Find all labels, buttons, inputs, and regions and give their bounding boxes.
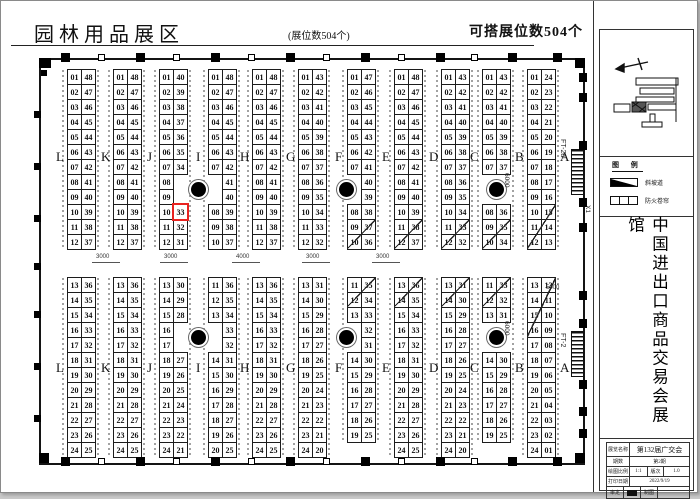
booth-cell: 01	[441, 69, 456, 85]
booth-cell: 19	[394, 367, 409, 383]
escalator-label: FT-2	[559, 333, 566, 347]
booth-cell: 12	[252, 234, 267, 250]
booth-cell: 40	[496, 114, 511, 130]
dimension-label: 3000	[306, 254, 319, 260]
booth-cell: 19	[67, 367, 82, 383]
exhibitor-name-strip	[203, 70, 205, 248]
booth-cell: 08	[394, 174, 409, 190]
booth-cell: 14	[159, 292, 174, 308]
booth-cell: 44	[361, 114, 376, 130]
wall-pillar	[61, 457, 70, 466]
booth-cell: 43	[455, 69, 470, 85]
booth-cell: 08	[482, 204, 497, 220]
booth-cell: 09	[298, 189, 313, 205]
booth-cell: 48	[127, 69, 142, 85]
exhibitor-name-strip	[557, 278, 559, 456]
booth-cell: 31	[222, 352, 237, 368]
booth-cell: 40	[173, 69, 188, 85]
booth-cell: 05	[159, 129, 174, 145]
booth-cell: 15	[441, 307, 456, 323]
stamp-cell	[657, 487, 689, 498]
wall-pillar	[211, 457, 220, 466]
booth-cell: 07	[394, 159, 409, 175]
wall-pillar	[34, 215, 41, 222]
booth-cell: 22	[527, 412, 542, 428]
booth-cell: 23	[173, 412, 188, 428]
exhibitor-name-strip	[328, 70, 330, 248]
wall-opening	[398, 54, 405, 61]
aisle-letter-g-bottom: G	[286, 360, 295, 376]
exhibitor-name-strip	[189, 278, 191, 456]
booth-cell: 43	[127, 144, 142, 160]
wall-pillar	[553, 53, 562, 62]
booth-cell: 18	[252, 352, 267, 368]
booth-cell: 08	[208, 204, 223, 220]
booth-cell: 41	[266, 174, 281, 190]
dimension-label: 3000	[96, 254, 109, 260]
booth-cell: 27	[127, 412, 142, 428]
booth-cell: 19	[441, 367, 456, 383]
booth-cell: 01	[298, 69, 313, 85]
exhibitor-name-strip	[97, 278, 99, 456]
booth-cell: 47	[222, 84, 237, 100]
booth-cell: 19	[527, 367, 542, 383]
booth-cell: 36	[266, 277, 281, 293]
booth-cell: 27	[312, 337, 327, 353]
booth-cell: 25	[127, 442, 142, 458]
booth-cell: 24	[67, 442, 82, 458]
booth-cell: 14	[482, 352, 497, 368]
booth-cell: 30	[127, 367, 142, 383]
hall-plan: 0148024703460445054406430742084109401039…	[1, 1, 593, 492]
booth-cell: 44	[127, 129, 142, 145]
booth-cell: 24	[527, 442, 542, 458]
booth-cell: 22	[312, 412, 327, 428]
booth-cell: 11	[298, 219, 313, 235]
booth-cell: 12	[159, 234, 174, 250]
booth-cell: 47	[361, 69, 376, 85]
booth-cell: 13	[113, 277, 128, 293]
booth-cell: 03	[441, 99, 456, 115]
wall-pillar	[436, 53, 445, 62]
booth-cell: 37	[173, 114, 188, 130]
booth-cell: 19	[541, 144, 556, 160]
booth-cell: 02	[441, 84, 456, 100]
wall-opening	[471, 54, 478, 61]
booth-cell: 07	[67, 159, 82, 175]
booth-cell: 20	[541, 129, 556, 145]
booth-cell: 38	[81, 219, 96, 235]
booth-cell: 44	[81, 129, 96, 145]
aisle-letter-c-bottom: C	[470, 360, 479, 376]
booth-cell: 14	[252, 292, 267, 308]
booth-cell: 35	[127, 292, 142, 308]
booth-cell: 20	[67, 382, 82, 398]
booth-cell: 39	[81, 204, 96, 220]
booth-cell: 05	[527, 129, 542, 145]
sidebar-divider	[593, 1, 594, 492]
exhibitor-name-strip	[557, 70, 559, 248]
booth-cell: 43	[81, 144, 96, 160]
booth-cell: 09	[394, 189, 409, 205]
legend-title: 图 例	[612, 160, 643, 172]
wall-opening	[323, 458, 330, 465]
booth-cell: 24	[394, 442, 409, 458]
booth-cell: 10	[298, 204, 313, 220]
booth-cell: 31	[266, 352, 281, 368]
booth-cell: 16	[394, 322, 409, 338]
booth-cell: 43	[222, 144, 237, 160]
booth-cell: 18	[394, 352, 409, 368]
booth-cell: 01	[394, 69, 409, 85]
booth-cell: 13	[67, 277, 82, 293]
aisle-letter-g-top: G	[286, 149, 295, 165]
booth-cell: 10	[67, 204, 82, 220]
booth-cell: 33	[127, 322, 142, 338]
wall-pillar	[34, 363, 41, 370]
booth-cell: 15	[347, 367, 362, 383]
booth-cell: 15	[159, 307, 174, 323]
aisle-letter-l-top: L	[56, 149, 64, 165]
wall-opening	[98, 54, 105, 61]
booth-cell: 27	[222, 412, 237, 428]
booth-cell: 41	[222, 174, 237, 190]
booth-cell: 20	[252, 382, 267, 398]
booth-cell: 22	[173, 427, 188, 443]
booth-cell: 07	[298, 159, 313, 175]
booth-cell: 16	[159, 322, 174, 338]
exhibitor-name-strip	[512, 70, 514, 248]
booth-cell: 34	[81, 307, 96, 323]
venue-title-vertical: 中国进出口商品交易会展馆	[600, 216, 693, 438]
dimension-label: 6000	[503, 173, 510, 187]
booth-cell: 43	[312, 69, 327, 85]
booth-cell: 37	[266, 234, 281, 250]
ramp-diagonal-mark	[394, 277, 423, 307]
booth-cell: 44	[266, 129, 281, 145]
booth-cell: 39	[222, 204, 237, 220]
booth-cell: 41	[361, 159, 376, 175]
booth-cell: 20	[159, 382, 174, 398]
booth-cell: 30	[408, 367, 423, 383]
booth-cell: 34	[222, 307, 237, 323]
booth-cell: 39	[127, 204, 142, 220]
booth-cell: 46	[361, 84, 376, 100]
aisle-letter-l-bottom: L	[56, 360, 64, 376]
dimension-label: 3000	[164, 254, 177, 260]
booth-cell: 04	[252, 114, 267, 130]
booth-cell: 21	[394, 397, 409, 413]
ramp-diagonal-mark	[482, 277, 511, 307]
aisle-letter-j-top: J	[147, 149, 152, 165]
booth-cell: 39	[266, 204, 281, 220]
booth-cell: 01	[527, 69, 542, 85]
booth-cell: 08	[113, 174, 128, 190]
booth-cell: 10	[208, 234, 223, 250]
booth-cell: 18	[541, 159, 556, 175]
wall-pillar	[34, 311, 41, 318]
booth-cell: 38	[266, 219, 281, 235]
booth-cell: 18	[482, 412, 497, 428]
selected-booth-highlight[interactable]	[172, 203, 189, 221]
booth-cell: 30	[266, 367, 281, 383]
wall-opening	[471, 458, 478, 465]
booth-cell: 06	[441, 144, 456, 160]
dimension-line	[160, 262, 188, 263]
scale-value: 1:1	[629, 467, 647, 476]
dimension-label: 4000	[236, 254, 249, 260]
booth-cell: 33	[312, 219, 327, 235]
booth-cell: 40	[222, 189, 237, 205]
booth-cell: 27	[266, 412, 281, 428]
booth-cell: 31	[81, 352, 96, 368]
wall-pillar	[579, 429, 587, 438]
booth-cell: 17	[441, 337, 456, 353]
booth-cell: 36	[81, 277, 96, 293]
wall-pillar	[508, 457, 517, 466]
title-block-label: 打印日期	[607, 477, 629, 486]
booth-cell: 37	[312, 159, 327, 175]
booth-cell: 26	[361, 412, 376, 428]
title-block-label: 绘图比例	[607, 467, 629, 476]
booth-cell: 33	[266, 322, 281, 338]
booth-cell: 02	[252, 84, 267, 100]
booth-cell: 05	[394, 129, 409, 145]
booth-cell: 24	[298, 442, 313, 458]
booth-cell: 12	[67, 234, 82, 250]
wall-pillar	[211, 53, 220, 62]
booth-cell: 21	[173, 442, 188, 458]
booth-cell: 37	[222, 234, 237, 250]
booth-cell: 38	[173, 99, 188, 115]
booth-cell: 11	[67, 219, 82, 235]
booth-cell: 05	[441, 129, 456, 145]
booth-cell: 09	[441, 189, 456, 205]
booth-cell: 31	[312, 277, 327, 293]
title-block-label: 版次	[647, 467, 663, 476]
booth-cell: 08	[347, 204, 362, 220]
booth-cell: 30	[222, 367, 237, 383]
booth-cell: 48	[222, 69, 237, 85]
booth-cell: 22	[441, 412, 456, 428]
booth-cell: 22	[455, 412, 470, 428]
booth-cell: 23	[298, 427, 313, 443]
booth-cell: 07	[482, 159, 497, 175]
booth-cell: 41	[81, 174, 96, 190]
booth-cell: 18	[298, 352, 313, 368]
aisle-letter-j-bottom: J	[147, 360, 152, 376]
booth-cell: 22	[541, 99, 556, 115]
booth-cell: 24	[159, 442, 174, 458]
booth-cell: 46	[266, 99, 281, 115]
booth-cell: 23	[113, 427, 128, 443]
aisle-letter-f-bottom: F	[335, 360, 342, 376]
booth-cell: 17	[394, 337, 409, 353]
corner-pillar	[575, 58, 585, 68]
booth-cell: 27	[455, 337, 470, 353]
booth-cell: 42	[222, 159, 237, 175]
booth-cell: 32	[81, 337, 96, 353]
booth-cell: 17	[347, 397, 362, 413]
booth-cell: 17	[252, 337, 267, 353]
booth-cell: 09	[527, 189, 542, 205]
booth-cell: 23	[455, 397, 470, 413]
ramp-diagonal-mark	[347, 277, 376, 307]
escalator-icon	[571, 331, 584, 377]
booth-cell: 24	[441, 442, 456, 458]
booth-cell: 04	[541, 397, 556, 413]
booth-cell: 04	[113, 114, 128, 130]
booth-cell: 16	[482, 382, 497, 398]
aisle-letter-k-bottom: K	[101, 360, 110, 376]
booth-cell: 06	[252, 144, 267, 160]
booth-cell: 45	[127, 114, 142, 130]
title-block: 展览名称 第132届广交会 期数 第2期 绘图比例 1:1 版次 1.0 打印日…	[606, 442, 690, 499]
booth-cell: 13	[252, 277, 267, 293]
booth-cell: 26	[312, 352, 327, 368]
wall-opening	[398, 458, 405, 465]
wall-pillar	[136, 457, 145, 466]
booth-cell: 08	[159, 174, 174, 190]
booth-cell: 13	[159, 277, 174, 293]
booth-cell: 06	[67, 144, 82, 160]
booth-cell: 42	[408, 159, 423, 175]
booth-cell: 34	[408, 307, 423, 323]
column-circle	[489, 330, 504, 345]
booth-cell: 27	[81, 412, 96, 428]
booth-cell: 15	[482, 367, 497, 383]
aisle-letter-i-bottom: I	[196, 360, 200, 376]
booth-cell: 32	[222, 337, 237, 353]
wall-pillar	[579, 141, 587, 150]
booth-cell: 32	[173, 219, 188, 235]
booth-cell: 10	[252, 204, 267, 220]
booth-cell: 16	[298, 322, 313, 338]
booth-cell: 27	[408, 412, 423, 428]
booth-cell: 28	[173, 307, 188, 323]
booth-cell: 27	[361, 397, 376, 413]
exhibition-name: 第132届广交会	[629, 443, 689, 456]
booth-cell: 19	[298, 367, 313, 383]
wall-pillar	[579, 291, 587, 300]
booth-cell: 03	[159, 99, 174, 115]
booth-cell: 24	[455, 382, 470, 398]
booth-cell: 04	[527, 114, 542, 130]
booth-cell: 25	[173, 382, 188, 398]
booth-cell: 40	[266, 189, 281, 205]
booth-cell: 21	[252, 397, 267, 413]
booth-cell: 45	[222, 114, 237, 130]
dimension-line	[302, 262, 330, 263]
booth-cell: 28	[266, 397, 281, 413]
booth-cell: 06	[159, 144, 174, 160]
booth-cell: 22	[159, 412, 174, 428]
ramp-diagonal-mark	[527, 204, 556, 249]
booth-cell: 36	[173, 129, 188, 145]
booth-cell: 44	[222, 129, 237, 145]
booth-cell: 35	[266, 292, 281, 308]
booth-cell: 02	[394, 84, 409, 100]
ramp-diagonal-mark	[347, 219, 376, 249]
booth-cell: 20	[527, 382, 542, 398]
booth-cell: 25	[455, 367, 470, 383]
booth-cell: 16	[113, 322, 128, 338]
booth-cell: 48	[266, 69, 281, 85]
booth-cell: 28	[408, 397, 423, 413]
booth-cell: 13	[482, 307, 497, 323]
booth-cell: 17	[298, 337, 313, 353]
booth-cell: 39	[455, 129, 470, 145]
booth-cell: 09	[208, 219, 223, 235]
legend-item-label: 防火卷帘	[645, 196, 669, 205]
booth-cell: 01	[208, 69, 223, 85]
booth-cell: 37	[81, 234, 96, 250]
booth-cell: 29	[222, 382, 237, 398]
booth-cell: 24	[113, 442, 128, 458]
booth-cell: 40	[312, 114, 327, 130]
booth-cell: 26	[127, 427, 142, 443]
column-circle	[339, 182, 354, 197]
phase-value: 第2期	[629, 457, 689, 466]
dimension-line	[92, 262, 120, 263]
aisle-letter-i-top: I	[196, 149, 200, 165]
booth-cell: 35	[312, 189, 327, 205]
booth-cell: 26	[173, 367, 188, 383]
booth-cell: 24	[173, 397, 188, 413]
aisle-letter-e-bottom: E	[382, 360, 390, 376]
booth-cell: 23	[312, 397, 327, 413]
column-circle	[339, 330, 354, 345]
booth-cell: 17	[113, 337, 128, 353]
exhibitor-name-strip	[282, 278, 284, 456]
booth-cell: 35	[222, 292, 237, 308]
booth-cell: 45	[361, 99, 376, 115]
booth-cell: 05	[541, 382, 556, 398]
booth-cell: 23	[67, 427, 82, 443]
booth-cell: 21	[455, 427, 470, 443]
exhibitor-name-strip	[342, 278, 344, 441]
booth-cell: 04	[298, 114, 313, 130]
booth-cell: 34	[312, 204, 327, 220]
booth-cell: 16	[541, 189, 556, 205]
booth-cell: 41	[312, 99, 327, 115]
title-block-label: 制图	[640, 487, 657, 498]
booth-cell: 19	[482, 427, 497, 443]
booth-cell: 18	[67, 352, 82, 368]
booth-cell: 34	[173, 159, 188, 175]
booth-cell: 37	[455, 159, 470, 175]
booth-cell: 40	[361, 174, 376, 190]
booth-cell: 20	[113, 382, 128, 398]
wall-pillar	[579, 93, 587, 102]
title-block-label: 期数	[607, 457, 629, 466]
booth-cell: 10	[394, 204, 409, 220]
booth-cell: 03	[541, 412, 556, 428]
booth-cell: 47	[81, 84, 96, 100]
booth-cell: 15	[252, 307, 267, 323]
wall-pillar	[136, 53, 145, 62]
booth-cell: 04	[482, 114, 497, 130]
legend-item-label: 斜坡道	[645, 178, 663, 187]
booth-cell: 44	[408, 129, 423, 145]
booth-cell: 29	[312, 307, 327, 323]
wall-pillar	[436, 457, 445, 466]
booth-cell: 19	[113, 367, 128, 383]
booth-cell: 29	[81, 382, 96, 398]
booth-cell: 04	[159, 114, 174, 130]
corner-pillar	[41, 70, 47, 76]
booth-cell: 32	[408, 337, 423, 353]
